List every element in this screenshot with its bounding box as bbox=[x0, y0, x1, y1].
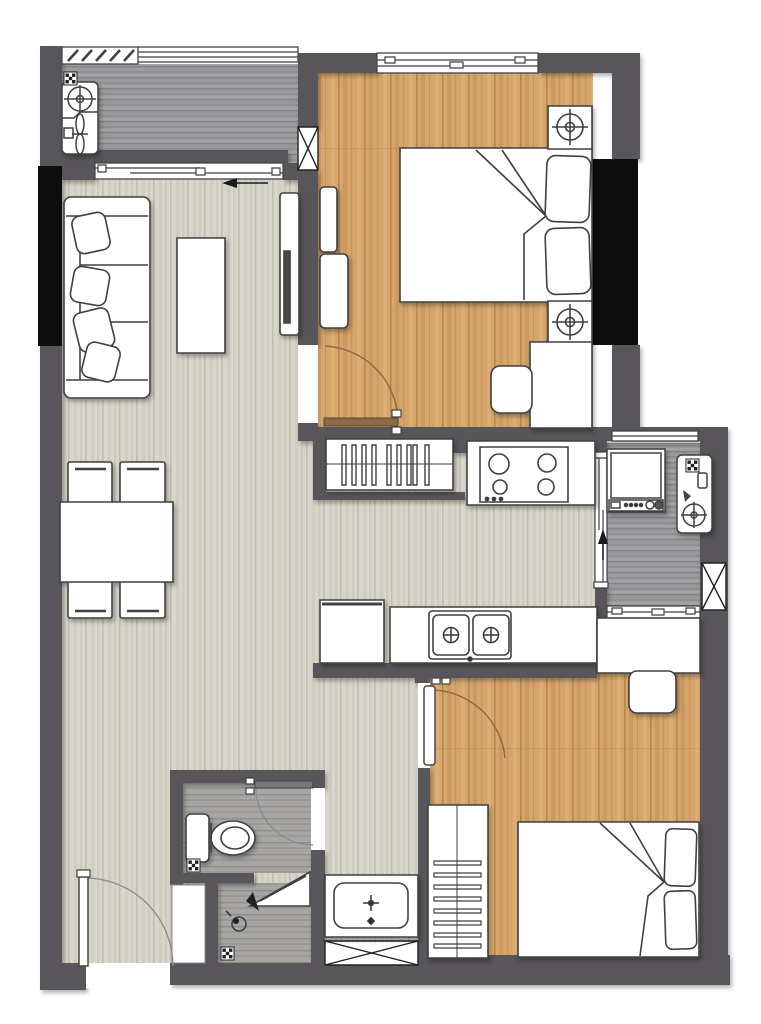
entrance-threshold bbox=[86, 963, 170, 988]
shaft-x-box-top bbox=[298, 127, 318, 170]
floor-plan-drawing bbox=[0, 0, 761, 1024]
chair bbox=[629, 671, 676, 713]
dining-table bbox=[60, 502, 173, 582]
sink-counter bbox=[390, 607, 597, 663]
bed-double bbox=[400, 148, 592, 302]
corridor-shaft-x-box bbox=[325, 941, 418, 965]
door-leaf bbox=[79, 877, 88, 966]
floor-drain-icon bbox=[686, 459, 699, 472]
wall-balcony-south-east bbox=[283, 163, 298, 180]
wardrobe-panel bbox=[320, 187, 337, 252]
service-niche bbox=[172, 885, 205, 963]
laundry-basin-unit bbox=[62, 82, 98, 154]
pillow bbox=[664, 828, 697, 886]
desk bbox=[597, 618, 700, 673]
wall-bathroom-west bbox=[170, 770, 183, 885]
utility-north-window bbox=[612, 431, 698, 441]
shear-column-right bbox=[592, 159, 638, 345]
wall-south-mid bbox=[170, 963, 430, 985]
floor-plan bbox=[0, 0, 761, 1024]
wall-east-upper bbox=[612, 73, 640, 159]
pillow bbox=[664, 890, 697, 949]
wall-bedroom1-west-upper bbox=[298, 73, 318, 127]
wardrobe-panel bbox=[320, 254, 348, 328]
wall-bedroom1-top-left bbox=[298, 53, 377, 73]
wall-bedroom1-west-mid bbox=[298, 170, 318, 345]
dining-chair bbox=[68, 580, 112, 618]
sofa bbox=[64, 197, 150, 398]
tv bbox=[284, 251, 290, 323]
wall-kitchen-south bbox=[313, 663, 597, 678]
wall-bathroom-divider bbox=[180, 873, 254, 883]
wall-balcony-south bbox=[95, 150, 288, 163]
nightstand-bottom bbox=[548, 301, 592, 343]
refrigerator bbox=[320, 600, 384, 663]
utility-sliding-door bbox=[594, 452, 608, 588]
wall-cabinet-west bbox=[313, 441, 326, 500]
nightstand-top bbox=[548, 106, 592, 149]
bedroom-2-interior-window bbox=[607, 606, 700, 618]
cushion bbox=[70, 211, 111, 255]
chair bbox=[491, 366, 532, 413]
bedroom-1-window bbox=[377, 53, 538, 73]
dining-chair bbox=[120, 462, 165, 504]
floor-drain-icon bbox=[187, 859, 200, 872]
wall-bedroom1-west-lower bbox=[298, 423, 318, 441]
door-leaf bbox=[255, 781, 313, 788]
dining-chair bbox=[120, 580, 165, 618]
bed-double bbox=[518, 822, 699, 957]
ac-shaft-x-box-right bbox=[702, 563, 726, 610]
floor-drain-icon bbox=[221, 947, 234, 960]
pillow bbox=[545, 227, 591, 294]
wall-shower-west bbox=[205, 883, 218, 965]
wall-cabinet-south bbox=[313, 492, 465, 500]
door-leaf bbox=[324, 418, 398, 426]
louver-window bbox=[62, 47, 138, 64]
bedroom-1-threshold bbox=[298, 345, 318, 423]
wall-east-mid bbox=[612, 345, 640, 428]
shear-column-left bbox=[38, 166, 62, 346]
floor-drain-icon bbox=[64, 72, 77, 85]
wall-bedroom1-top-right bbox=[538, 53, 640, 73]
faucet-icon bbox=[443, 627, 459, 643]
pillow bbox=[545, 155, 591, 222]
wall-bathroom-east-lower bbox=[311, 850, 325, 965]
washing-machine bbox=[607, 449, 665, 512]
desk bbox=[530, 342, 592, 428]
bathroom-threshold bbox=[311, 788, 325, 850]
door-leaf bbox=[424, 686, 435, 765]
balcony-fixtures bbox=[62, 82, 98, 154]
wall-bedroom2-nw bbox=[415, 663, 430, 683]
louvered-wardrobe bbox=[428, 805, 488, 958]
dining-chair bbox=[68, 462, 112, 504]
cushion bbox=[69, 265, 111, 307]
tall-slatted-cabinet bbox=[326, 439, 453, 490]
wall-south-east bbox=[418, 955, 730, 985]
faucet-icon bbox=[483, 627, 499, 643]
wall-south-west bbox=[40, 963, 86, 990]
wall-cabinet-stove-divider bbox=[453, 441, 467, 453]
vanity bbox=[325, 875, 418, 937]
coffee-table bbox=[177, 238, 225, 353]
cooktop-counter bbox=[467, 441, 595, 505]
balcony-sliding-door bbox=[95, 163, 283, 179]
balcony-top-window bbox=[138, 47, 298, 62]
tv-console bbox=[280, 193, 299, 335]
